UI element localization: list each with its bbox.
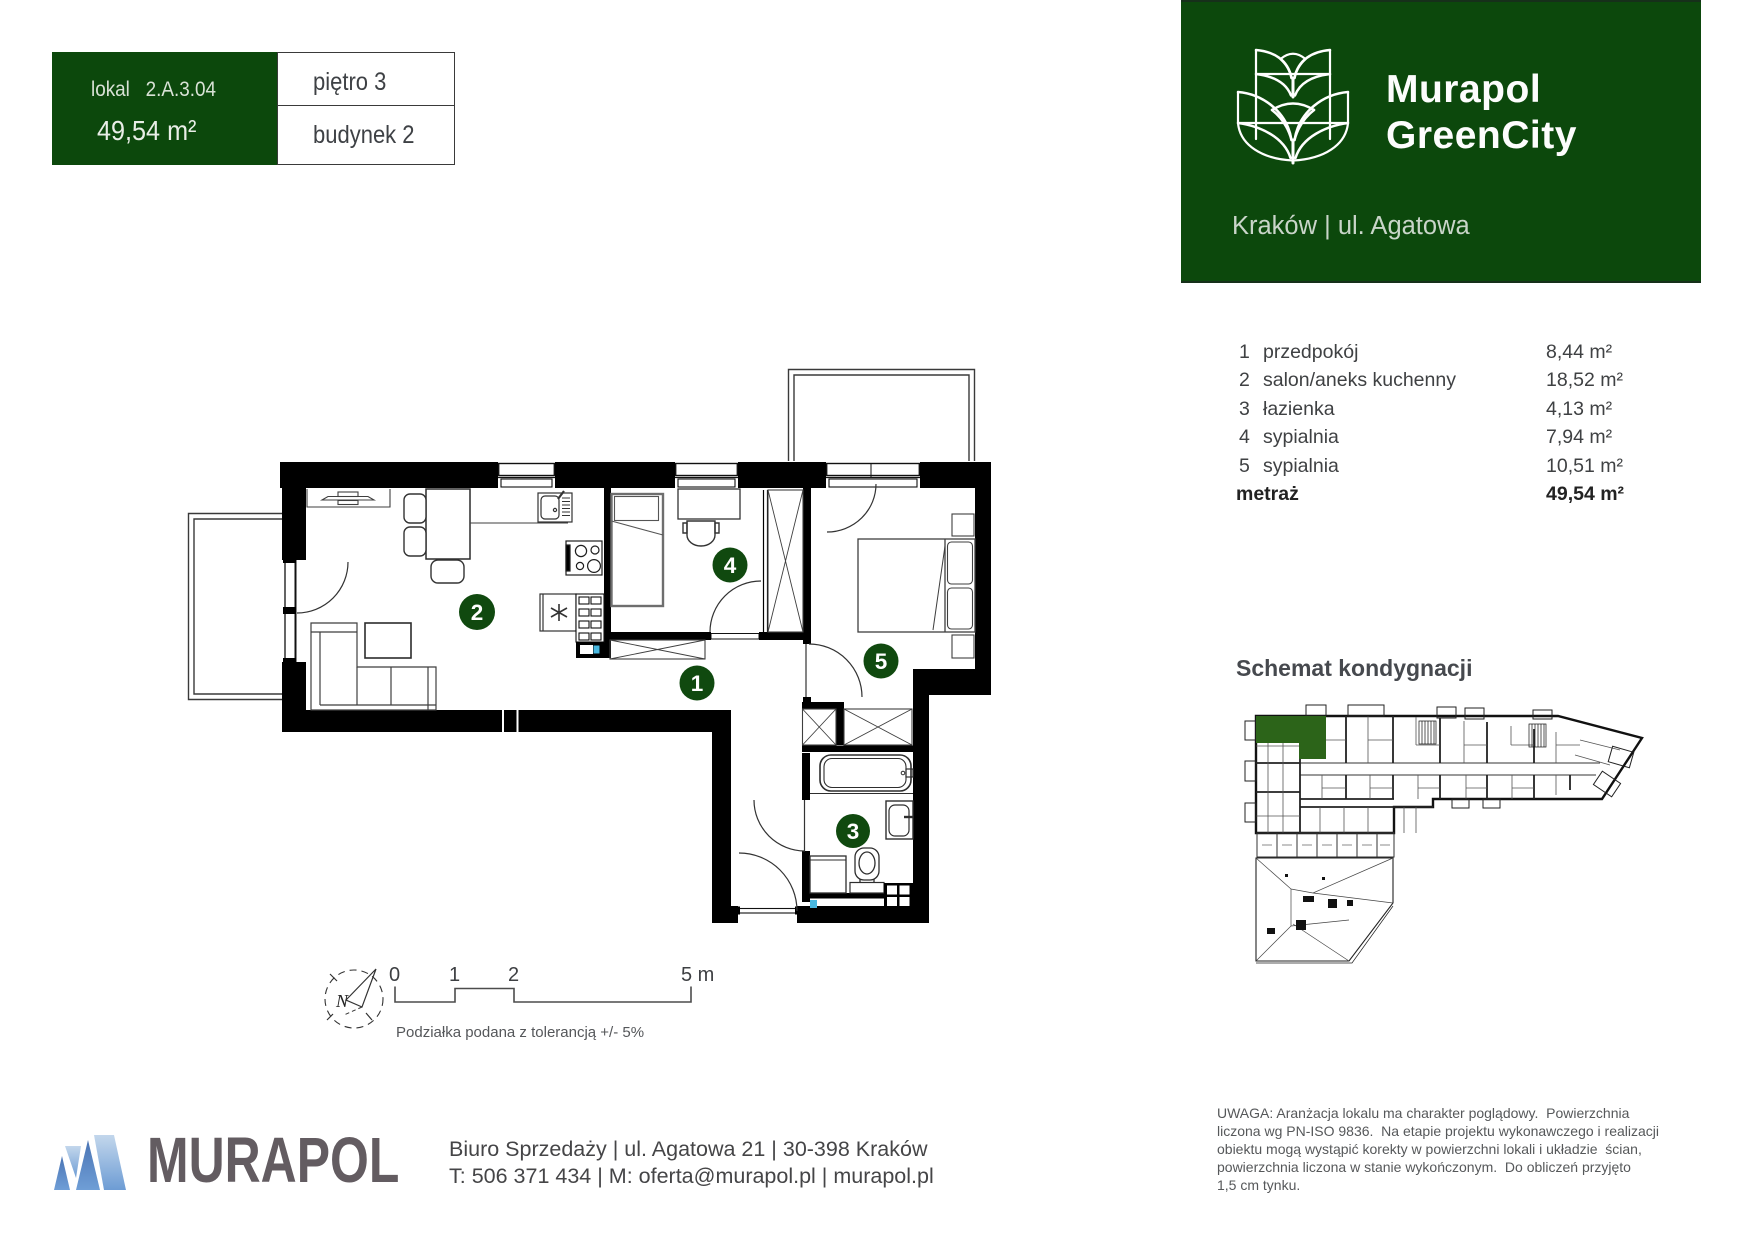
svg-text:1: 1 xyxy=(449,964,460,986)
svg-text:2: 2 xyxy=(508,964,519,986)
svg-text:N: N xyxy=(335,991,349,1011)
svg-text:3: 3 xyxy=(847,819,860,844)
svg-text:2: 2 xyxy=(471,600,484,625)
svg-text:5: 5 xyxy=(875,649,888,674)
svg-text:1: 1 xyxy=(691,671,704,696)
svg-text:0: 0 xyxy=(389,964,400,986)
svg-text:4: 4 xyxy=(724,553,737,578)
svg-text:Podziałka podana z tolerancją: Podziałka podana z tolerancją +/- 5% xyxy=(396,1024,644,1041)
svg-text:5 m: 5 m xyxy=(681,964,714,986)
